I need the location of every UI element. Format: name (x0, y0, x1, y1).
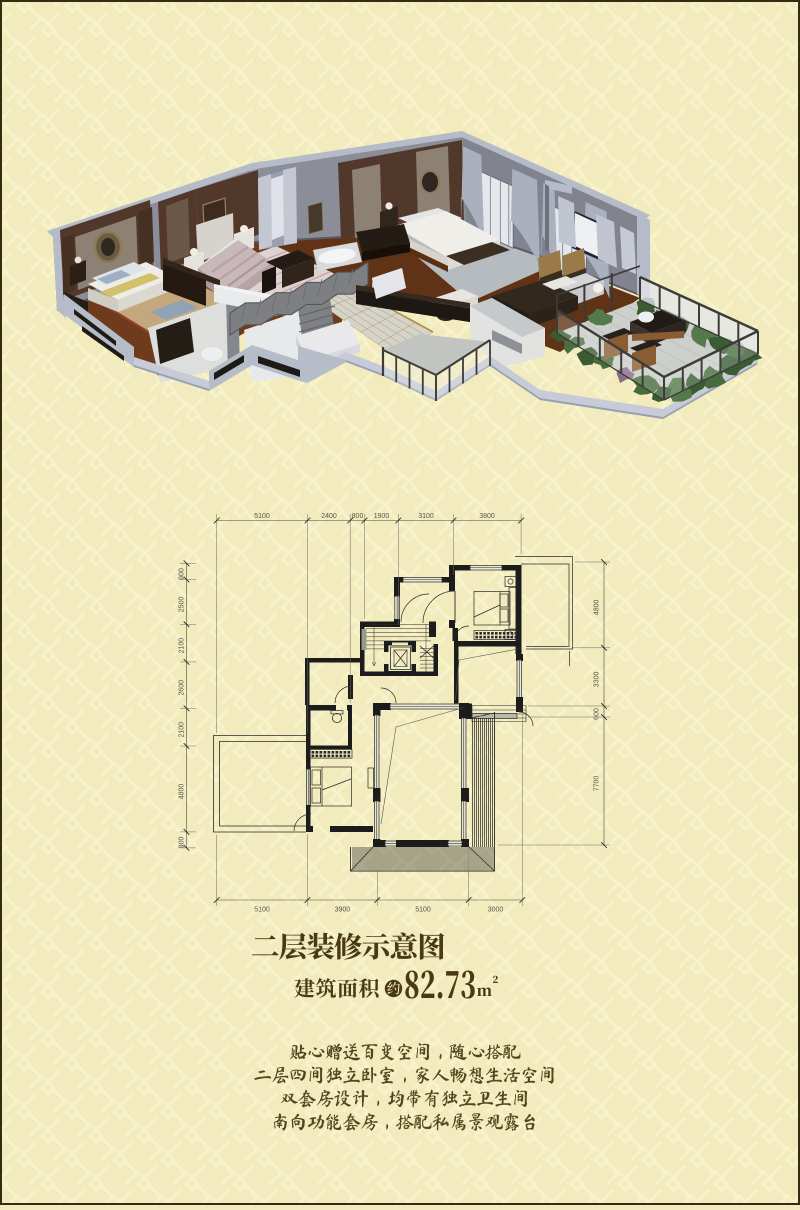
svg-text:900: 900 (179, 568, 186, 580)
svg-text:2500: 2500 (179, 597, 186, 613)
svg-text:4800: 4800 (594, 600, 601, 616)
svg-text:4800: 4800 (179, 784, 186, 800)
svg-text:5100: 5100 (415, 907, 431, 914)
svg-text:7700: 7700 (594, 776, 601, 792)
svg-text:900: 900 (179, 836, 186, 848)
svg-text:1900: 1900 (374, 513, 390, 520)
svg-text:600: 600 (594, 708, 601, 720)
svg-text:2100: 2100 (179, 722, 186, 738)
svg-text:5100: 5100 (254, 907, 270, 914)
svg-text:3100: 3100 (418, 513, 434, 520)
svg-text:3300: 3300 (594, 672, 601, 688)
svg-text:2400: 2400 (321, 513, 337, 520)
svg-text:2100: 2100 (179, 638, 186, 654)
svg-text:3900: 3900 (335, 907, 351, 914)
svg-text:800: 800 (352, 513, 364, 520)
svg-text:2600: 2600 (179, 680, 186, 696)
svg-text:5100: 5100 (254, 513, 270, 520)
svg-text:3000: 3000 (488, 907, 504, 914)
svg-text:3800: 3800 (479, 513, 495, 520)
